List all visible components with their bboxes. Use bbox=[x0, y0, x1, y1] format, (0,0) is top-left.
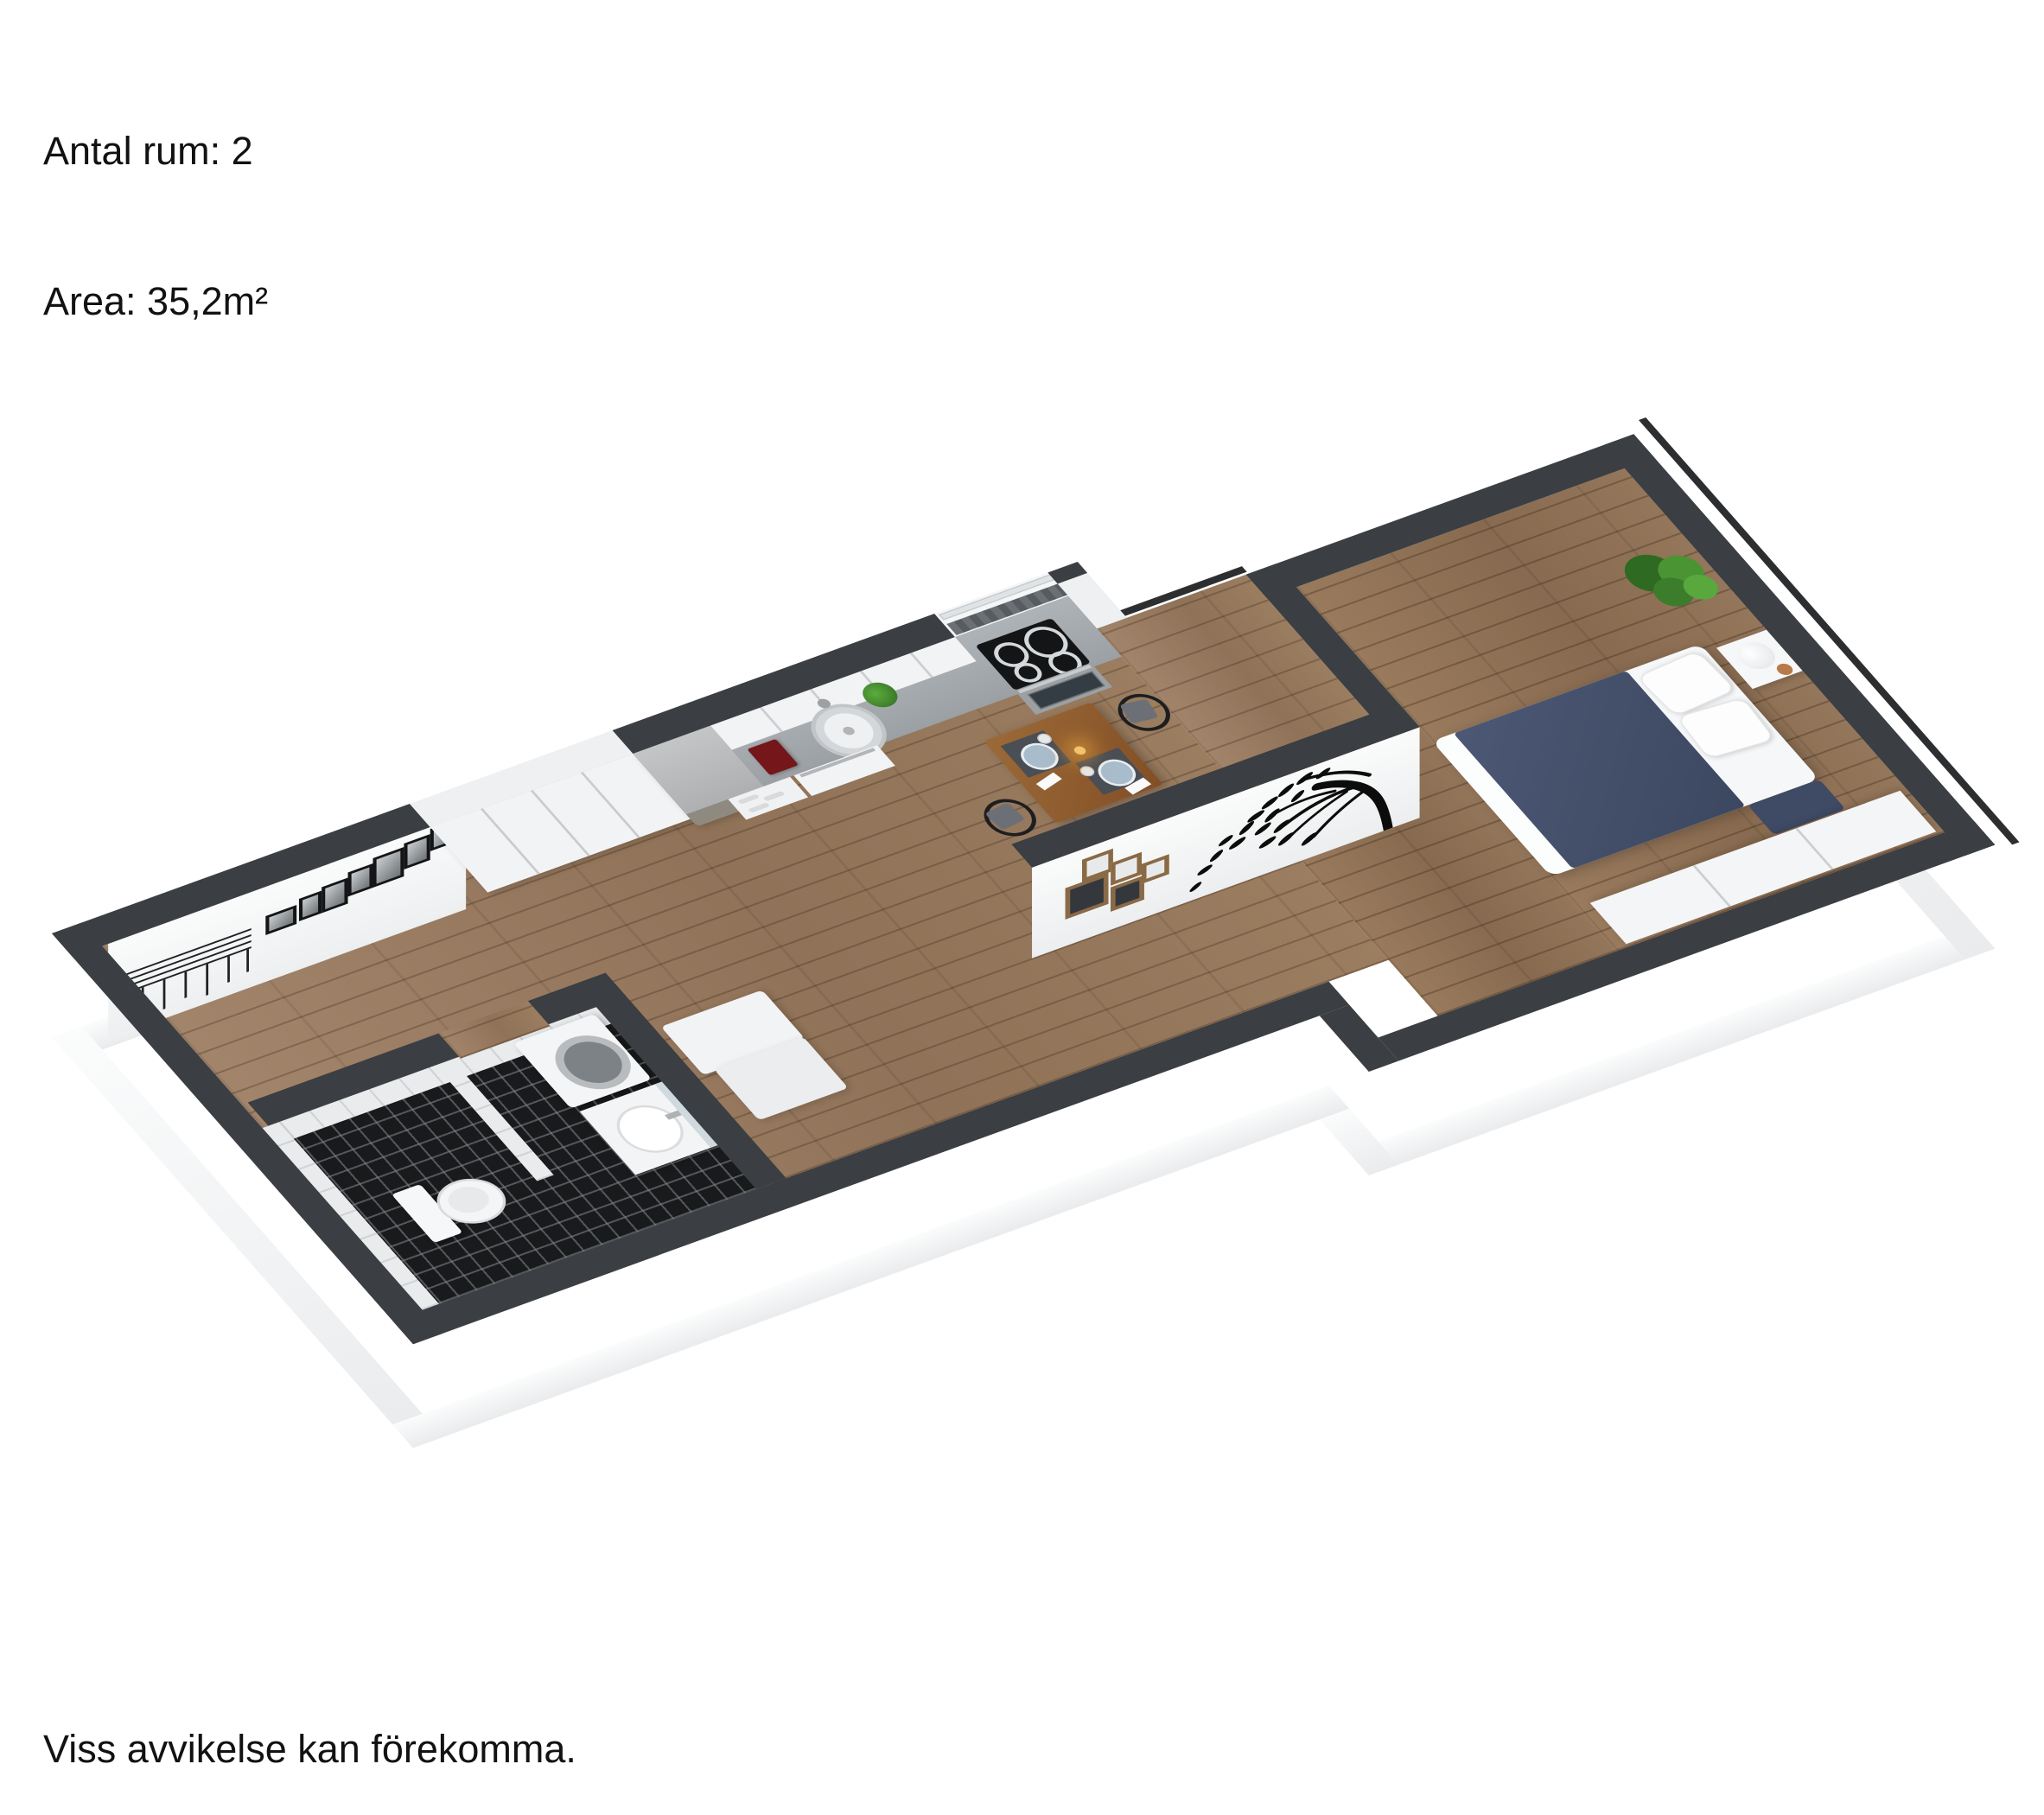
area-label: Area: 35,2m² bbox=[43, 277, 268, 327]
floorplan-page: { "header": { "line1": "Antal rum: 2", "… bbox=[0, 0, 2044, 1815]
disclaimer-label: Viss avvikelse kan förekomma. bbox=[43, 1724, 576, 1774]
room-count-label: Antal rum: 2 bbox=[43, 126, 268, 176]
collage-frame bbox=[1066, 873, 1109, 920]
coat-rack-hook bbox=[206, 964, 208, 996]
coat-rack-hook bbox=[227, 956, 230, 983]
plan-info: Antal rum: 2 Area: 35,2m² bbox=[43, 26, 268, 377]
coat-rack-hook bbox=[184, 971, 187, 998]
coat-rack-hook bbox=[246, 949, 249, 972]
coat-rack-hook bbox=[163, 979, 166, 1009]
